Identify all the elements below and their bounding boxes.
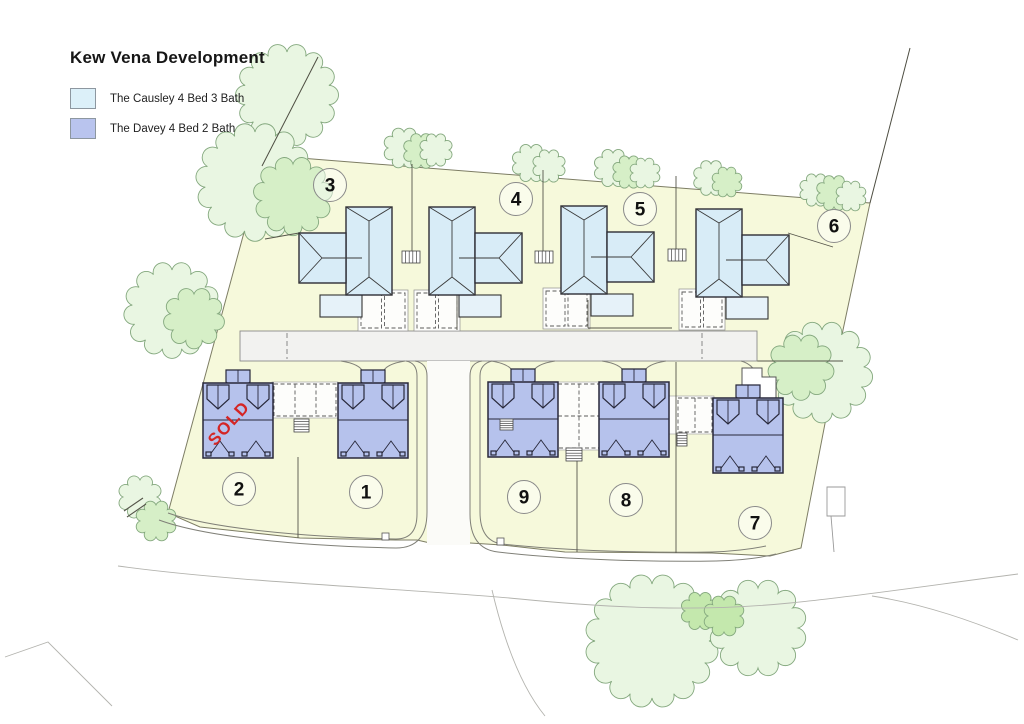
plot-marker-2[interactable]: 2: [223, 473, 256, 506]
plot-number: 3: [325, 176, 336, 197]
main-road: [240, 331, 757, 361]
legend-item-davey: The Davey 4 Bed 2 Bath: [70, 118, 265, 139]
plot-marker-9[interactable]: 9: [508, 481, 541, 514]
plot-number: 9: [519, 488, 530, 509]
plot-marker-6[interactable]: 6: [818, 210, 851, 243]
plot-marker-7[interactable]: 7: [739, 507, 772, 540]
davey-house[interactable]: [713, 385, 783, 473]
plot-number: 1: [361, 483, 372, 504]
page-title: Kew Vena Development: [70, 48, 265, 68]
plot-marker-5[interactable]: 5: [624, 193, 657, 226]
legend: The Causley 4 Bed 3 Bath The Davey 4 Bed…: [70, 88, 265, 139]
legend-item-causley: The Causley 4 Bed 3 Bath: [70, 88, 265, 109]
shared-drive: [427, 361, 470, 545]
davey-house[interactable]: [338, 370, 408, 458]
plot-number: 6: [829, 217, 840, 238]
plot-marker-3[interactable]: 3: [314, 169, 347, 202]
davey-swatch-icon: [70, 118, 96, 139]
plot-marker-1[interactable]: 1: [350, 476, 383, 509]
plot-number: 5: [635, 200, 646, 221]
plot-number: 8: [621, 491, 632, 512]
davey-house[interactable]: [599, 369, 669, 457]
causley-swatch-icon: [70, 88, 96, 109]
plot-number: 4: [511, 190, 522, 211]
site-plan-canvas: Kew Vena Development The Causley 4 Bed 3…: [0, 0, 1024, 724]
davey-house[interactable]: [488, 369, 558, 457]
plot-number: 7: [750, 514, 761, 535]
plot-marker-4[interactable]: 4: [500, 183, 533, 216]
plot-number: 2: [234, 480, 245, 501]
legend-label: The Causley 4 Bed 3 Bath: [110, 93, 244, 105]
legend-label: The Davey 4 Bed 2 Bath: [110, 123, 235, 135]
plot-marker-8[interactable]: 8: [610, 484, 643, 517]
plan-header: Kew Vena Development The Causley 4 Bed 3…: [70, 48, 265, 148]
